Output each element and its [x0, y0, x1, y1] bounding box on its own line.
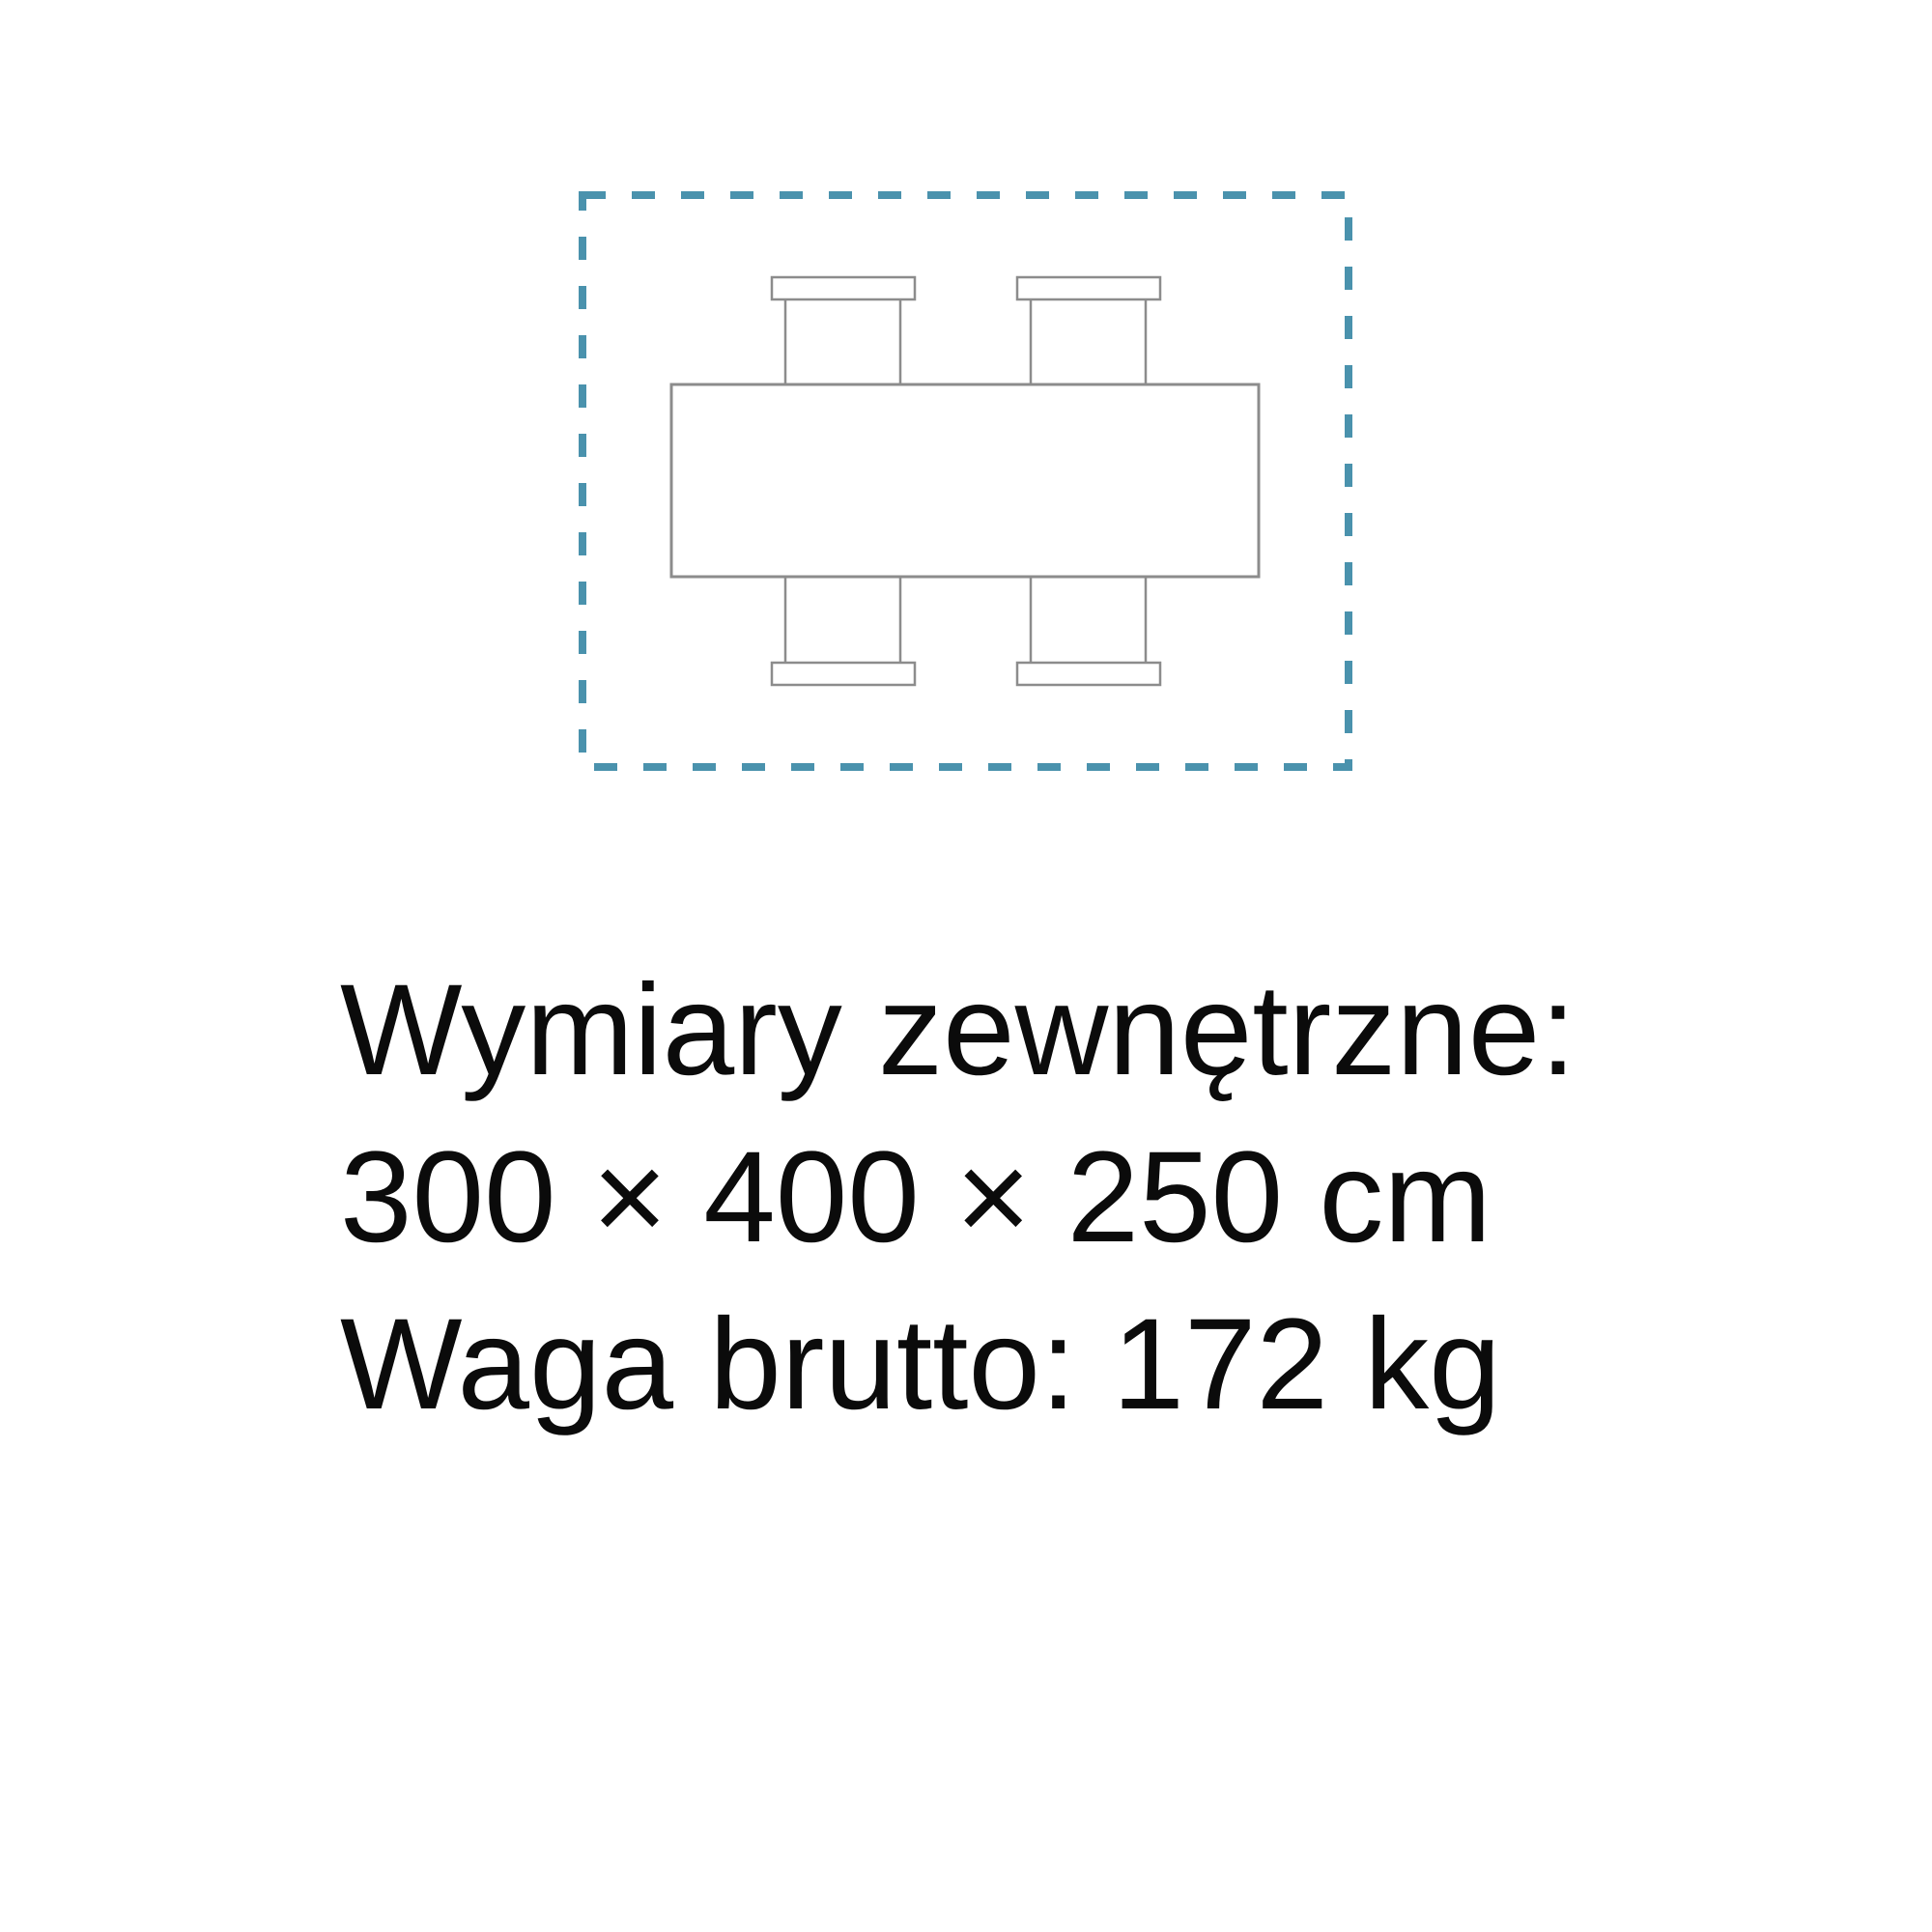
chair-top-right: [1017, 277, 1160, 389]
dimensions-heading: Wymiary zewnętrzne:: [340, 947, 1741, 1114]
chair-backrest: [1017, 277, 1160, 299]
gross-weight-line: Waga brutto: 172 kg: [340, 1281, 1741, 1448]
chair-seat: [785, 572, 900, 664]
product-specs: Wymiary zewnętrzne: 300 × 400 × 250 cm W…: [340, 947, 1741, 1448]
chair-seat: [1031, 572, 1146, 664]
chair-backrest: [1017, 663, 1160, 685]
chair-seat: [785, 298, 900, 389]
chair-backrest: [772, 663, 915, 685]
chair-bottom-left: [772, 572, 915, 685]
chair-seat: [1031, 298, 1146, 389]
chair-backrest: [772, 277, 915, 299]
chair-bottom-right: [1017, 572, 1160, 685]
chair-top-left: [772, 277, 915, 389]
table-top-view: [671, 384, 1259, 577]
dimensions-value: 300 × 400 × 250 cm: [340, 1114, 1741, 1281]
